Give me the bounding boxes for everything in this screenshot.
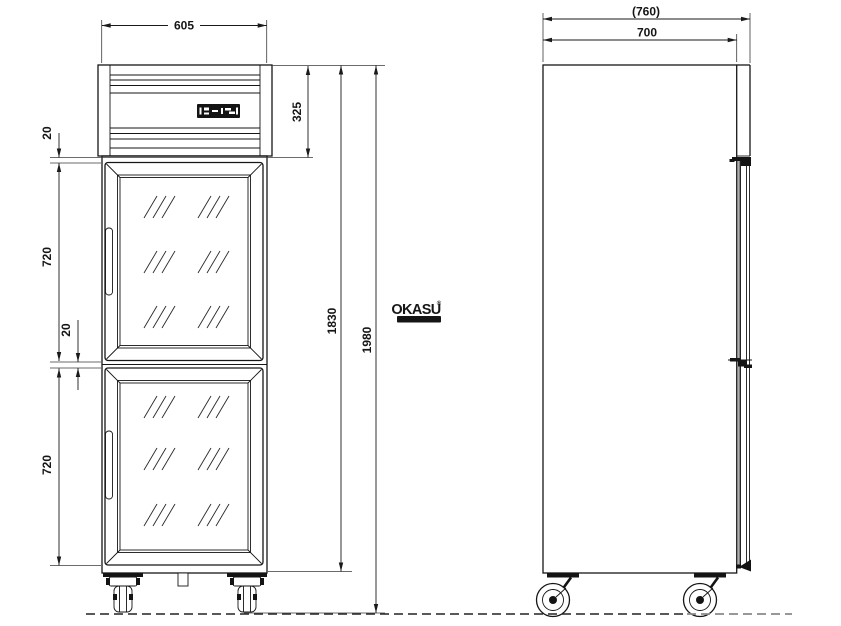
- dimensions-side: (760) 700: [543, 5, 750, 64]
- lower-door-glass-inner: [120, 383, 248, 550]
- dim-label-gap-mid: 20: [59, 323, 73, 337]
- dim-label-top-height: 325: [290, 102, 304, 122]
- side-door-profile: [728, 157, 752, 572]
- dim-label-width: 605: [174, 19, 194, 33]
- dim-total-height-1980: 1980: [244, 66, 385, 614]
- dim-label-total-height: 1980: [360, 326, 374, 353]
- dim-label-body-height: 1830: [325, 307, 339, 334]
- upper-door-handle: [106, 228, 113, 295]
- lower-door-handle: [106, 431, 113, 499]
- drawing-svg: 605 325 20 720: [0, 0, 841, 626]
- front-caster-right: [227, 573, 267, 612]
- upper-door-frame: [105, 163, 263, 361]
- lower-glass-door: [105, 368, 263, 565]
- upper-glass-door: [105, 163, 263, 361]
- upper-door-glass-inner: [120, 178, 248, 346]
- upper-door-glass-reflections: [144, 196, 229, 328]
- brand-watermark: OKASU ® ••••••••••: [391, 300, 441, 323]
- dim-depth-body-700: 700: [543, 26, 737, 63]
- technical-drawing-refrigerator: 605 325 20 720: [0, 0, 841, 626]
- lower-door-frame: [105, 368, 263, 565]
- louver-vents-bottom: [110, 128, 260, 148]
- dim-label-gap-top: 20: [40, 126, 54, 140]
- top-section-outline: [98, 65, 272, 156]
- front-cabinet-body: [102, 156, 267, 573]
- side-view: [537, 65, 753, 617]
- dim-lower-door-720: 720: [40, 369, 101, 566]
- side-body-outline: [543, 65, 737, 573]
- dim-width-605: 605: [102, 18, 267, 63]
- upper-door-glass-outer: [118, 175, 251, 348]
- front-caster-left: [103, 573, 143, 612]
- lower-door-glass-outer: [118, 381, 251, 553]
- front-view: [98, 65, 272, 612]
- dim-label-lower-door: 720: [40, 455, 54, 475]
- side-caster-rear: [684, 573, 727, 617]
- lower-door-glass-reflections: [144, 396, 229, 526]
- dim-label-depth-overall: (760): [632, 5, 660, 19]
- side-caster-front: [537, 573, 580, 617]
- brand-name: OKASU: [391, 302, 440, 318]
- dim-label-upper-door: 720: [40, 247, 54, 267]
- registered-mark: ®: [437, 300, 442, 307]
- dim-label-depth-body: 700: [637, 26, 657, 40]
- front-top-section: [98, 65, 272, 156]
- louver-vents-top: [110, 75, 260, 93]
- temperature-display: [197, 104, 240, 118]
- dim-body-height-1830: 1830: [268, 66, 352, 572]
- drain-spout: [178, 573, 188, 586]
- brand-tagline: ••••••••••: [408, 317, 430, 322]
